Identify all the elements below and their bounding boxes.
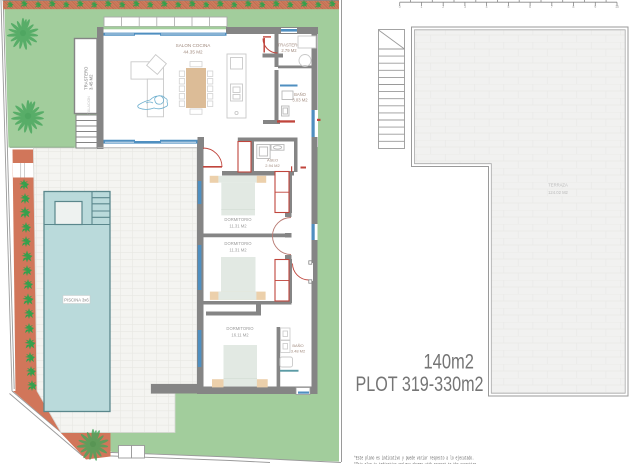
svg-text:2.94 M2: 2.94 M2 (265, 163, 280, 168)
svg-text:16.11 M2: 16.11 M2 (231, 333, 249, 338)
svg-text:PLOT 319-330m2: PLOT 319-330m2 (356, 371, 484, 396)
svg-text:11.31 M2: 11.31 M2 (229, 248, 247, 253)
svg-text:*Este plano es indicativo y pu: *Este plano es indicativo y puede variar… (354, 456, 474, 462)
svg-text:BAÑO: BAÑO (292, 343, 303, 348)
svg-text:TERRAZA: TERRAZA (548, 183, 568, 188)
svg-text:10: 10 (615, 5, 619, 9)
svg-text:9: 9 (594, 5, 596, 9)
svg-text:PISCINA 3x6: PISCINA 3x6 (64, 298, 89, 303)
svg-text:1: 1 (420, 5, 422, 9)
svg-text:3.03 M2: 3.03 M2 (292, 98, 308, 103)
svg-text:5: 5 (507, 5, 509, 9)
svg-text:0: 0 (399, 5, 401, 9)
svg-text:3.48 M2: 3.48 M2 (291, 349, 306, 354)
svg-text:SALON COCINA: SALON COCINA (176, 43, 212, 48)
svg-text:DORMITORIO: DORMITORIO (226, 326, 254, 331)
svg-text:44.35 M2: 44.35 M2 (183, 50, 203, 55)
svg-text:DORMITORIO: DORMITORIO (224, 217, 252, 222)
svg-text:4: 4 (486, 5, 488, 9)
svg-text:3: 3 (464, 5, 466, 9)
svg-text:11.31 M2: 11.31 M2 (229, 224, 247, 229)
svg-text:124.02 M2: 124.02 M2 (548, 190, 568, 195)
svg-text:BAÑO: BAÑO (294, 92, 307, 97)
svg-text:7: 7 (551, 5, 553, 9)
svg-text:8: 8 (573, 5, 575, 9)
svg-text:2: 2 (442, 5, 444, 9)
svg-text:6: 6 (529, 5, 531, 9)
svg-text:DORMITORIO: DORMITORIO (224, 241, 252, 246)
svg-text:3.45 M2: 3.45 M2 (89, 74, 94, 90)
svg-text:140m2: 140m2 (424, 348, 475, 373)
svg-text:2.79 M2: 2.79 M2 (281, 48, 297, 53)
